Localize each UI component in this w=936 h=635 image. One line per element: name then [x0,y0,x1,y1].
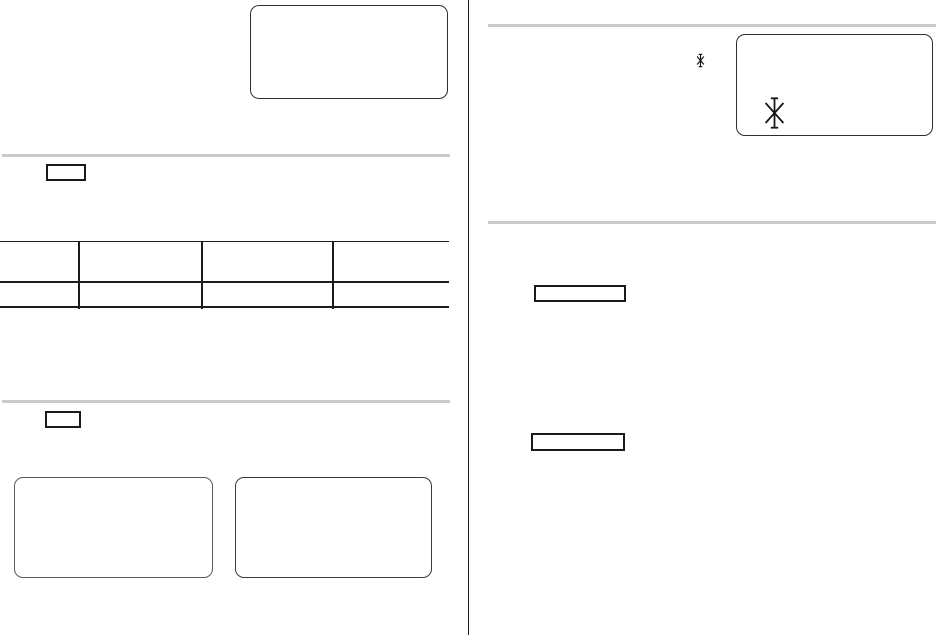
table-cell [204,284,330,305]
table-cell [2,284,76,305]
document-page [0,0,936,635]
table-cell [81,284,199,305]
table-cell [335,284,447,305]
section-divider [2,400,450,404]
table-rule-bottom [0,306,449,308]
table-rule-middle [0,281,449,283]
section-divider [488,24,936,28]
label-box [534,285,626,302]
asterisk-icon [696,53,705,68]
column-divider-rule [468,0,470,635]
bottom-callout-box-1 [14,477,213,578]
table-rule-vertical [332,241,334,309]
label-box [531,433,625,451]
table-cell [204,243,330,280]
table-cell [335,243,447,280]
section-divider [2,154,450,158]
asterisk-icon [764,97,785,129]
section-heading-label-box [45,411,81,428]
section-divider [488,221,936,225]
bottom-callout-box-2 [235,477,432,578]
table-rule-vertical [78,241,80,309]
top-callout-box [250,5,448,99]
section-heading-label-box [46,164,86,181]
table-cell [2,243,76,280]
table-rule-vertical [201,241,203,309]
table-cell [81,243,199,280]
